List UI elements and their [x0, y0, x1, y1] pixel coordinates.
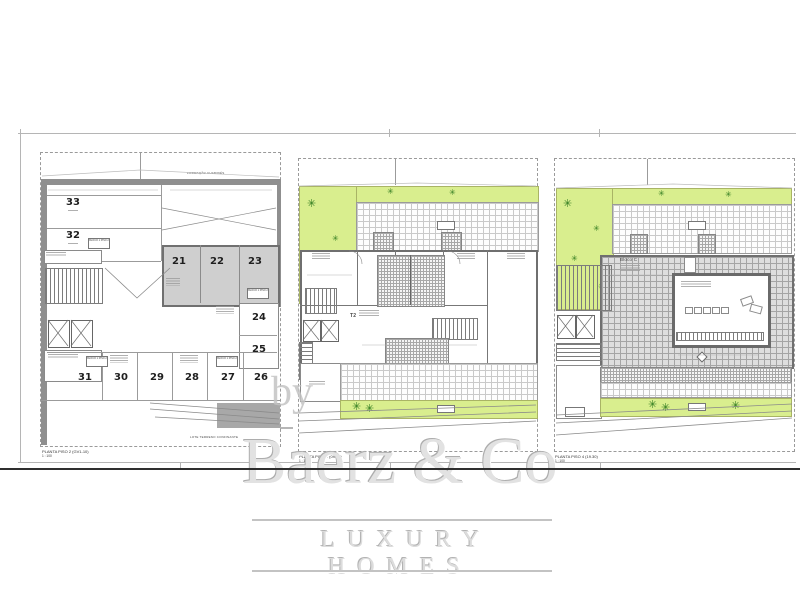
- roof-plan: ✳ ✳ ✳ ✳ ✳ ✳ Bloco C: [553, 155, 797, 467]
- watermark-by: by: [271, 368, 313, 416]
- frame-bottom-border: [0, 468, 800, 470]
- garage-scale: 1 : 100: [42, 454, 52, 458]
- floor-linework: [297, 155, 540, 467]
- frame-tick-mid1: [389, 129, 390, 137]
- watermark-tagline: LUXURY HOMES: [232, 527, 568, 581]
- drawing-sheet: FORMAÇÃO CHAMINÉS 33 32 BLOCO 1 PISO 2 2…: [0, 0, 800, 600]
- garage-plan: FORMAÇÃO CHAMINÉS 33 32 BLOCO 1 PISO 2 2…: [40, 150, 283, 462]
- watermark-rule: [252, 519, 552, 521]
- floor-plan: ✳ ✳ ✳ ✳ ✳ T2 ✳ ✳: [297, 155, 540, 467]
- frame-tick-mid2: [599, 129, 600, 137]
- roof-linework: [553, 155, 797, 467]
- frame-top-line: [18, 133, 796, 134]
- watermark-rule: [252, 570, 552, 572]
- watermark-brand: Baerz & Co: [232, 424, 568, 500]
- garage-linework: [40, 150, 295, 462]
- frame-left-border: [20, 133, 21, 463]
